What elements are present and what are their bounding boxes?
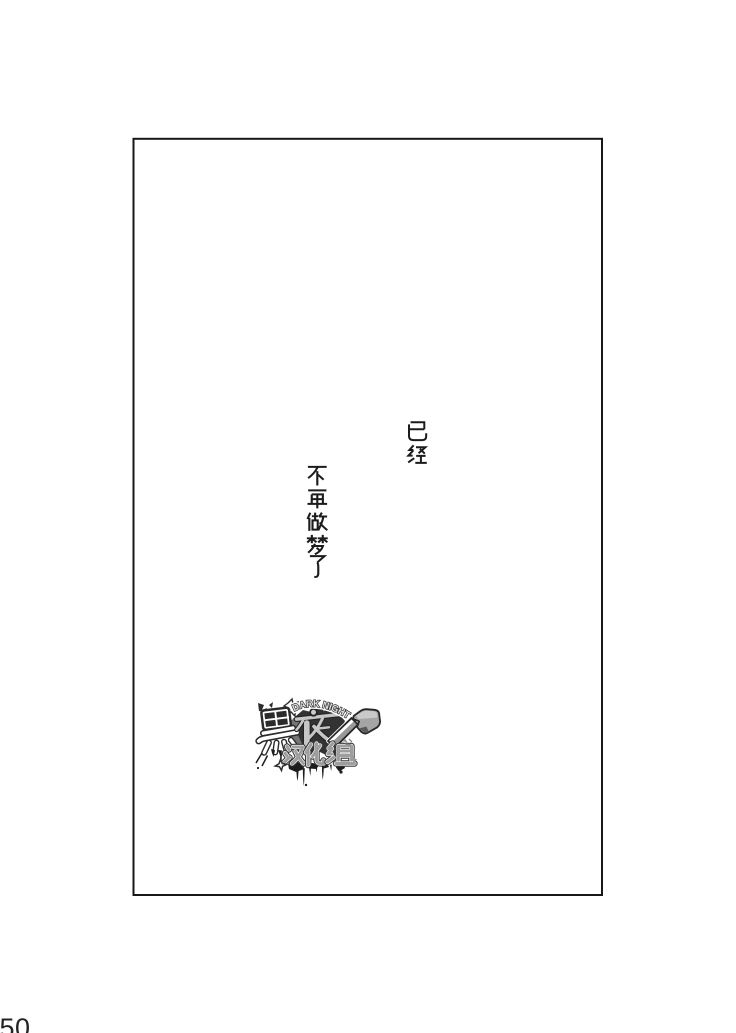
svg-text:50: 50 — [0, 1013, 31, 1033]
